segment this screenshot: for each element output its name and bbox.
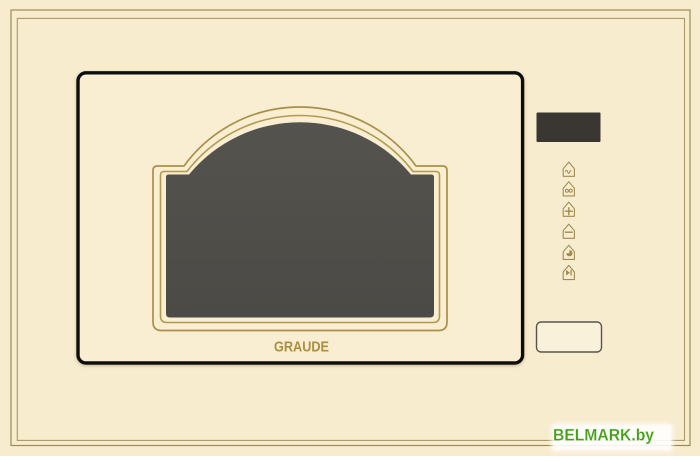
svg-text:GRAUDE: GRAUDE xyxy=(274,338,329,355)
svg-text:BELMARK.by: BELMARK.by xyxy=(553,425,654,444)
